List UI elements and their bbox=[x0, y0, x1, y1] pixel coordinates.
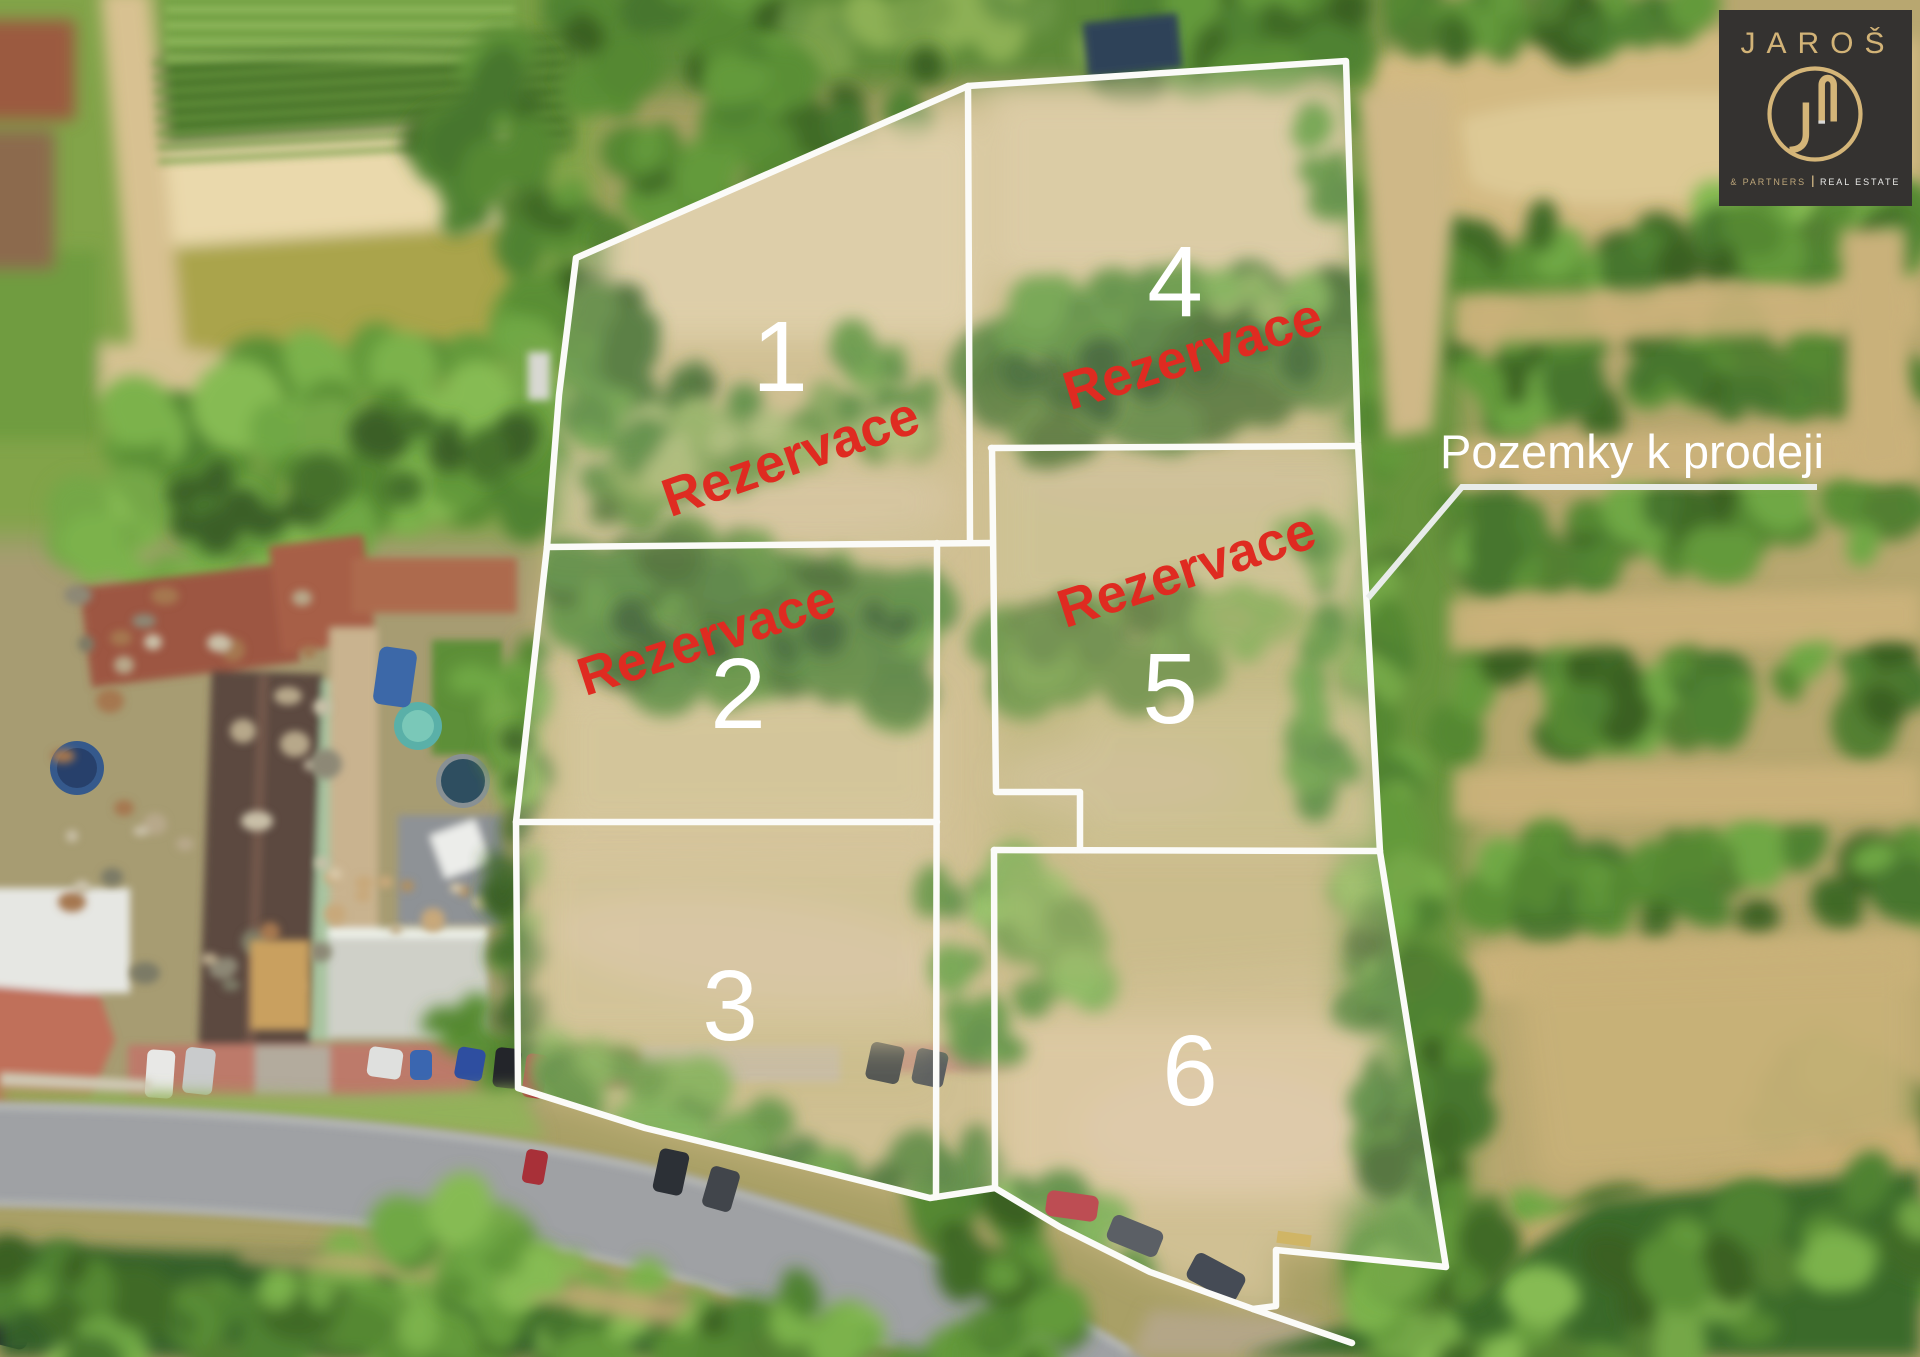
svg-text:6: 6 bbox=[1162, 1015, 1218, 1127]
svg-text:5: 5 bbox=[1142, 633, 1198, 745]
svg-text:3: 3 bbox=[702, 950, 758, 1062]
svg-text:1: 1 bbox=[752, 301, 808, 413]
svg-text:Pozemky k prodeji: Pozemky k prodeji bbox=[1440, 425, 1824, 478]
svg-text:JAROŠ: JAROŠ bbox=[1740, 26, 1895, 60]
svg-text:REAL ESTATE: REAL ESTATE bbox=[1820, 177, 1900, 187]
svg-text:& PARTNERS: & PARTNERS bbox=[1730, 177, 1806, 187]
